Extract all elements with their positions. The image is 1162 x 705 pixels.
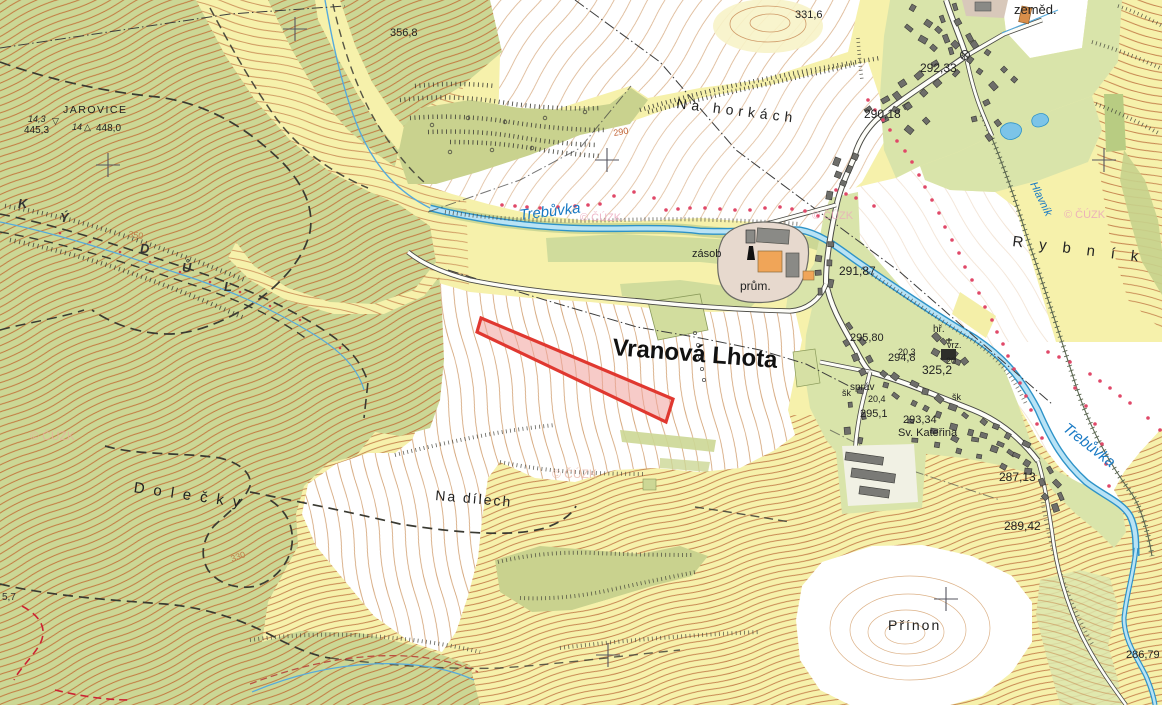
svg-text:448,0: 448,0 [96, 123, 121, 134]
svg-text:289,42: 289,42 [1004, 519, 1041, 533]
svg-text:445,3: 445,3 [24, 125, 49, 136]
svg-text:© ČÚZK: © ČÚZK [1064, 208, 1106, 221]
svg-text:šk: šk [842, 388, 852, 398]
svg-text:L: L [224, 279, 232, 294]
svg-text:331,6: 331,6 [795, 9, 823, 21]
svg-text:286,79: 286,79 [1126, 649, 1160, 661]
svg-text:295,80: 295,80 [850, 332, 884, 344]
svg-text:K: K [18, 196, 29, 211]
svg-text:Ý: Ý [60, 210, 70, 225]
svg-text:vrz.: vrz. [947, 340, 962, 350]
svg-text:© ČÚZK: © ČÚZK [580, 211, 622, 224]
svg-text:295,1: 295,1 [860, 408, 888, 420]
svg-text:Sv. Kateřina: Sv. Kateřina [898, 427, 958, 439]
svg-text:290,18: 290,18 [864, 107, 901, 121]
svg-text:20,4: 20,4 [868, 394, 886, 404]
svg-text:5,7: 5,7 [2, 592, 16, 603]
svg-text:zeměd.: zeměd. [1014, 2, 1057, 17]
svg-text:293,34: 293,34 [903, 414, 937, 426]
svg-text:356,8: 356,8 [390, 27, 418, 39]
svg-text:14,3: 14,3 [28, 114, 46, 124]
svg-text:△: △ [84, 122, 91, 132]
svg-text:▽: ▽ [52, 116, 59, 126]
svg-text:hř.: hř. [933, 324, 945, 335]
svg-text:Ů: Ů [182, 259, 192, 275]
svg-text:287,13: 287,13 [999, 470, 1036, 484]
svg-text:20,3: 20,3 [898, 347, 916, 357]
svg-text:Přínon: Přínon [888, 617, 941, 633]
svg-text:20: 20 [946, 356, 956, 366]
svg-text:291,87: 291,87 [839, 264, 876, 278]
svg-text:správ: správ [850, 382, 874, 393]
svg-text:14: 14 [72, 122, 82, 132]
svg-text:© ČÚZK: © ČÚZK [812, 209, 854, 222]
svg-text:350: 350 [128, 229, 144, 241]
svg-text:prům.: prům. [740, 279, 771, 293]
svg-text:D: D [140, 241, 150, 256]
svg-text:zásob: zásob [692, 248, 721, 260]
svg-text:© ČÚZK: © ČÚZK [552, 466, 597, 481]
svg-text:šk: šk [952, 392, 962, 402]
svg-text:JAROVICE: JAROVICE [63, 104, 128, 116]
svg-text:© ČÚZK: © ČÚZK [30, 428, 75, 443]
svg-text:292,33: 292,33 [920, 61, 957, 75]
